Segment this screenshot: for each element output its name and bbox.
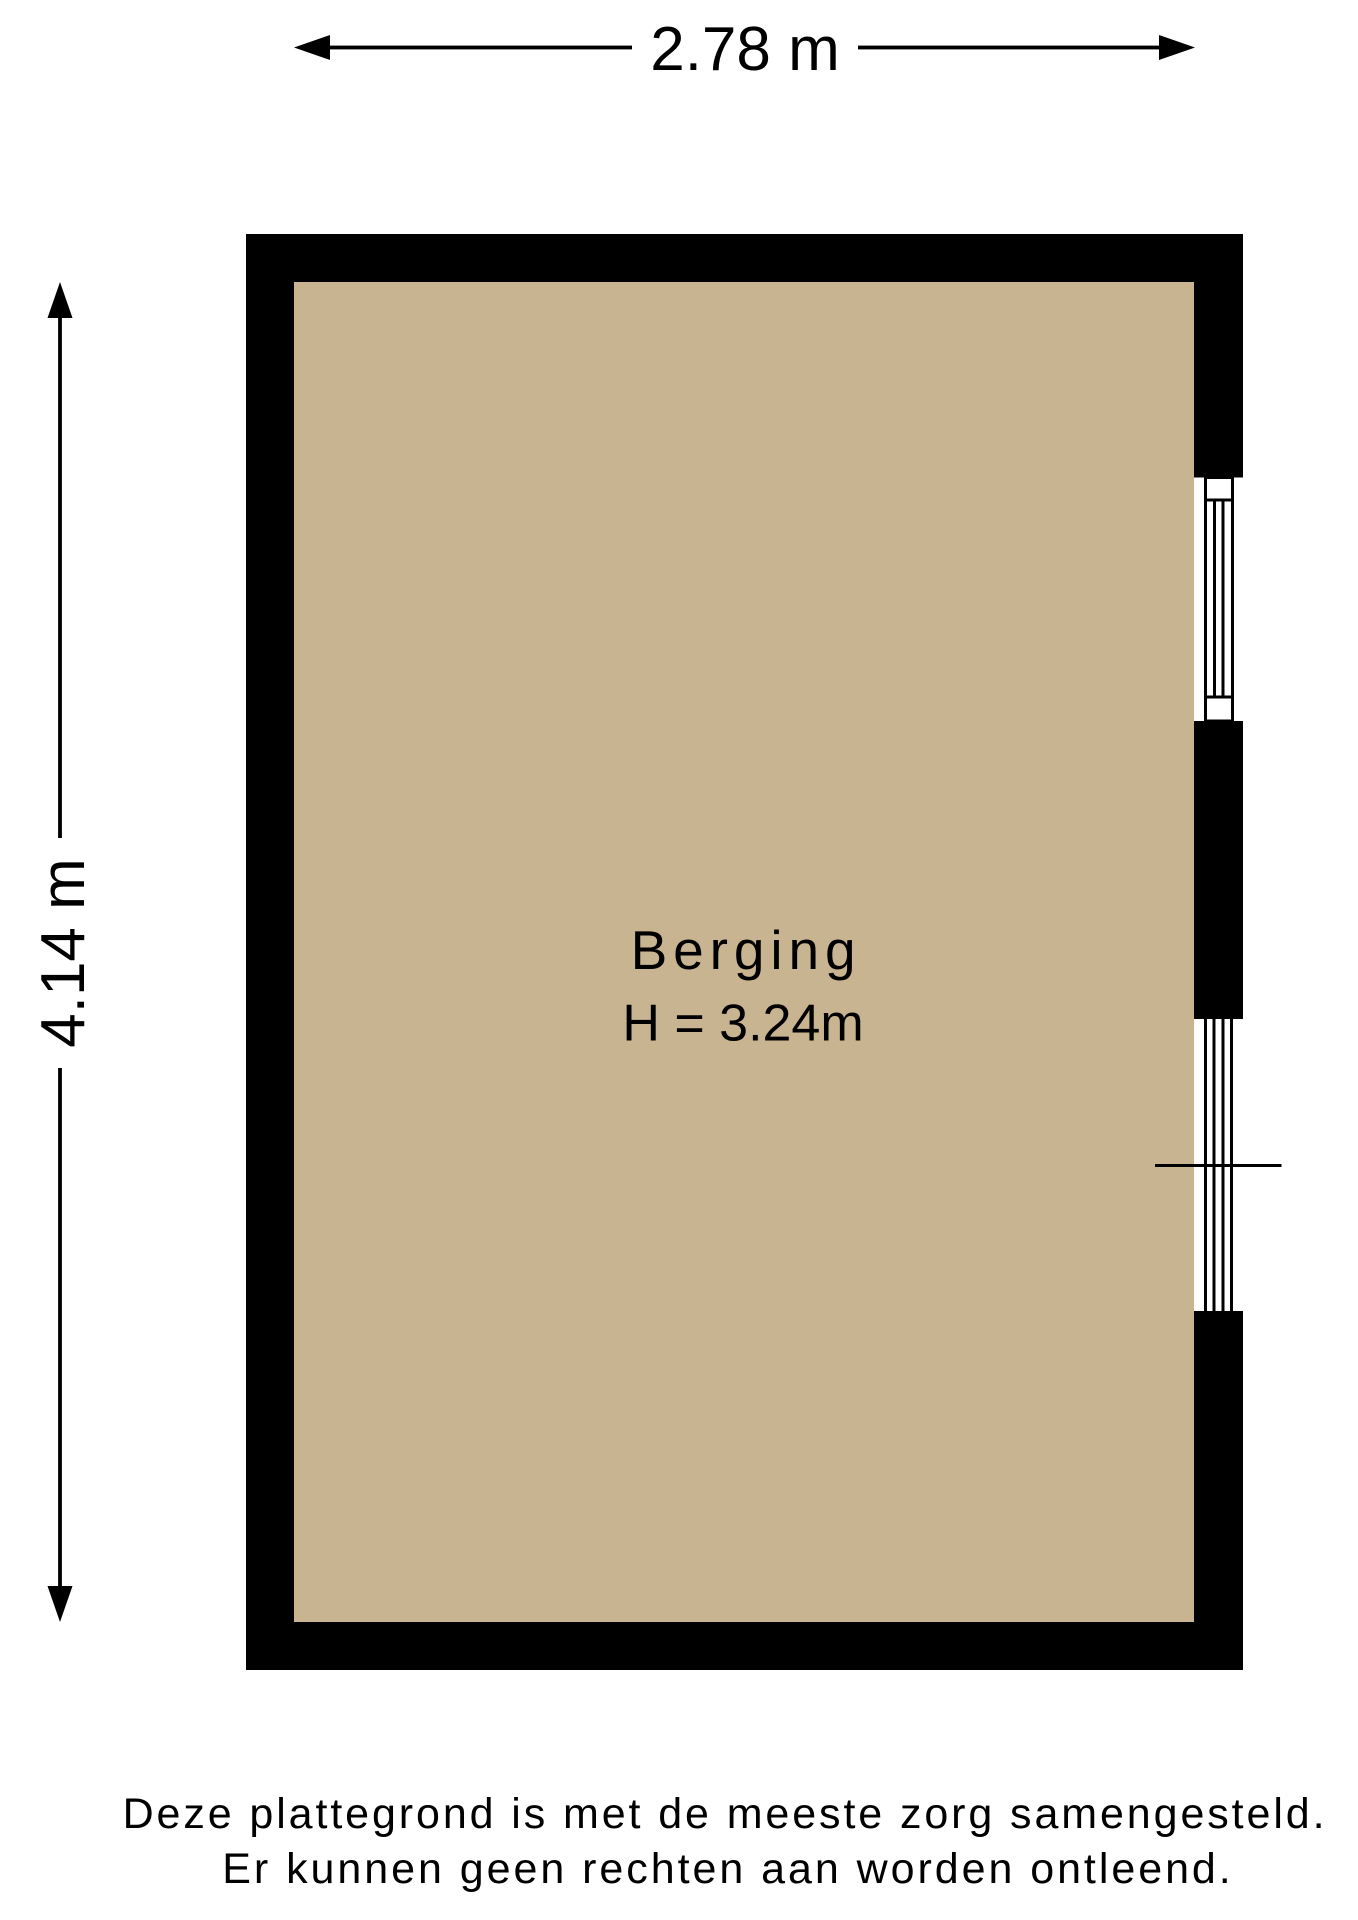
- svg-text:2.78 m: 2.78 m: [650, 15, 840, 84]
- svg-text:4.14 m: 4.14 m: [29, 858, 98, 1048]
- svg-text:Berging: Berging: [631, 919, 862, 981]
- svg-text:H = 3.24m: H = 3.24m: [622, 995, 863, 1053]
- svg-text:Deze plattegrond is met de mee: Deze plattegrond is met de meeste zorg s…: [123, 1790, 1328, 1838]
- svg-text:Er kunnen geen rechten aan wor: Er kunnen geen rechten aan worden ontlee…: [222, 1845, 1233, 1893]
